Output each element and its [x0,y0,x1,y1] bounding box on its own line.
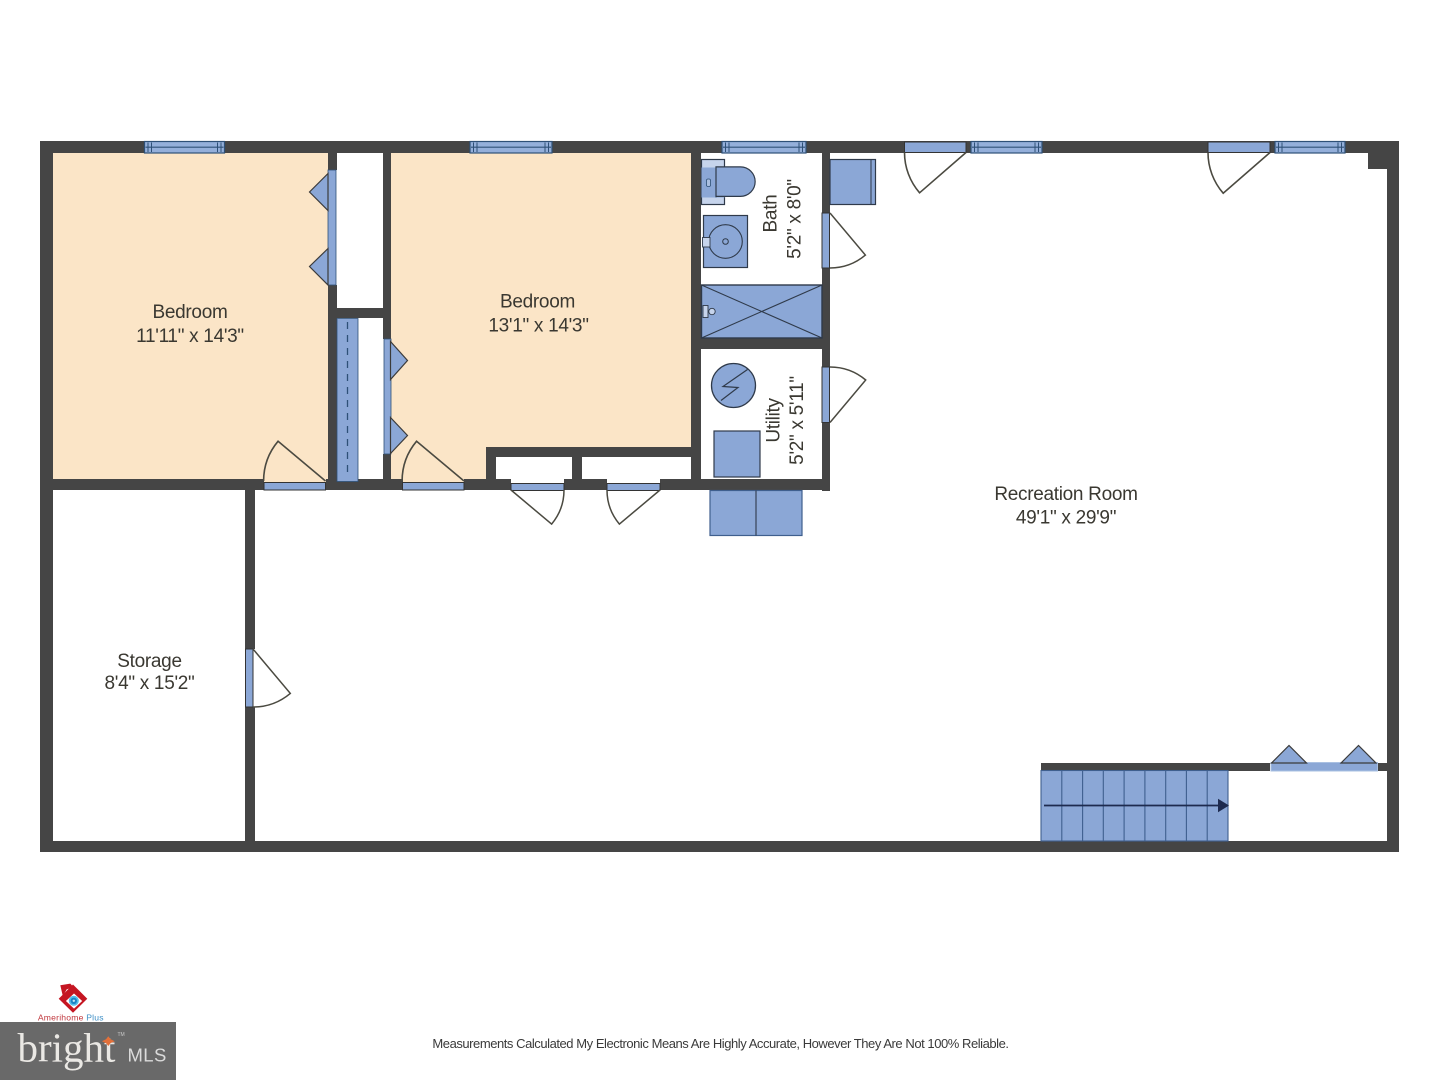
svg-text:MLS: MLS [128,1045,167,1066]
svg-text:11'11" x 14'3": 11'11" x 14'3" [136,326,244,347]
svg-text:Measurements Calculated My Ele: Measurements Calculated My Electronic Me… [432,1036,1008,1051]
svg-text:bright: bright [18,1025,117,1071]
svg-text:5'2" x 5'11": 5'2" x 5'11" [787,376,808,465]
svg-text:Amerihome Plus: Amerihome Plus [38,1013,104,1023]
svg-text:Utility: Utility [764,398,785,443]
svg-text:Bedroom: Bedroom [153,302,228,323]
svg-text:Bedroom: Bedroom [500,292,575,313]
svg-text:13'1" x 14'3": 13'1" x 14'3" [488,316,588,337]
svg-text:TM: TM [118,1032,125,1038]
svg-text:Recreation Room: Recreation Room [994,484,1137,505]
svg-text:Bath: Bath [760,195,781,233]
svg-text:5'2" x 8'0": 5'2" x 8'0" [784,179,805,259]
svg-text:8'4" x 15'2": 8'4" x 15'2" [104,673,194,694]
svg-text:49'1" x 29'9": 49'1" x 29'9" [1016,508,1116,529]
svg-text:Storage: Storage [117,651,181,672]
